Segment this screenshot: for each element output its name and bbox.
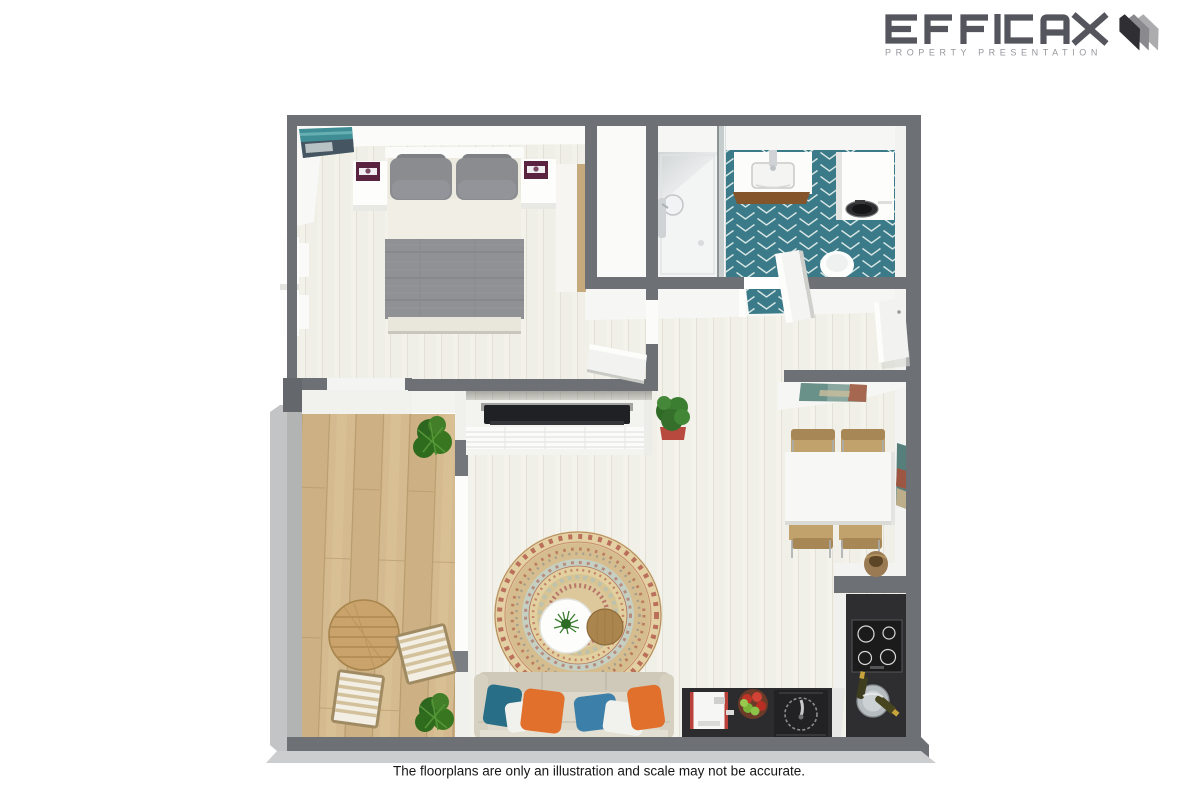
svg-text:The floorplans are only an ill: The floorplans are only an illustration … bbox=[393, 764, 805, 779]
svg-text:PROPERTY PRESENTATION: PROPERTY PRESENTATION bbox=[885, 48, 1102, 58]
